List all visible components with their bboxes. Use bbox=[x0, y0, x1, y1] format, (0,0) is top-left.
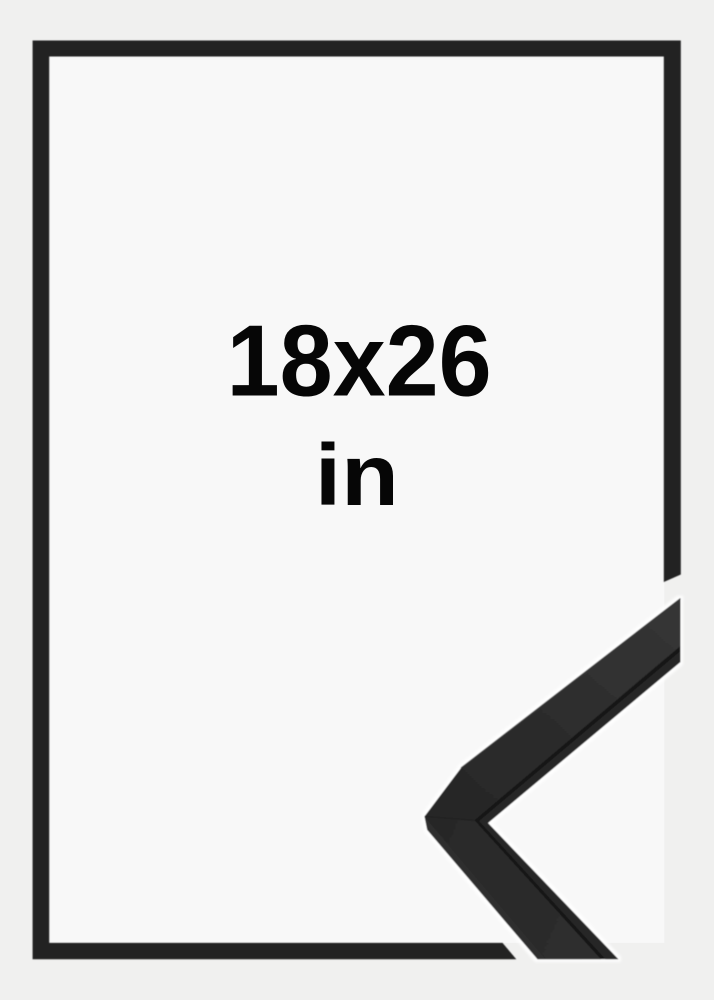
svg-text:in: in bbox=[315, 427, 399, 524]
svg-text:18x26: 18x26 bbox=[227, 305, 492, 417]
